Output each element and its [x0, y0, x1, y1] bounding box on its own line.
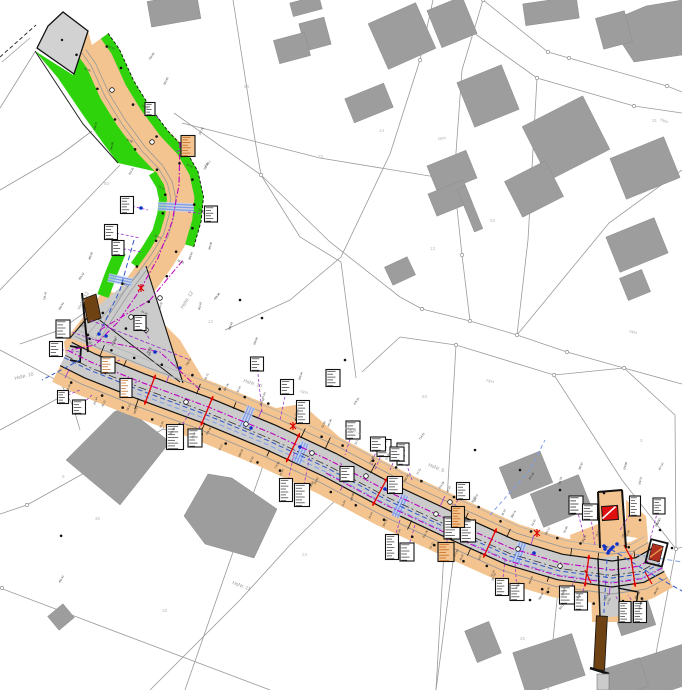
svg-text:33: 33 — [318, 154, 324, 159]
svg-text:63: 63 — [422, 394, 428, 399]
svg-text:23: 23 — [302, 552, 308, 557]
svg-text:25: 25 — [520, 636, 526, 641]
svg-text:14: 14 — [379, 128, 385, 133]
svg-text:53: 53 — [490, 218, 496, 223]
svg-text:96: 96 — [244, 84, 250, 89]
svg-text:35: 35 — [95, 516, 101, 521]
svg-text:12: 12 — [208, 319, 214, 324]
svg-text:13: 13 — [430, 246, 436, 251]
svg-text:15: 15 — [162, 608, 168, 613]
svg-text:83: 83 — [104, 181, 110, 186]
svg-text:31: 31 — [652, 118, 658, 123]
